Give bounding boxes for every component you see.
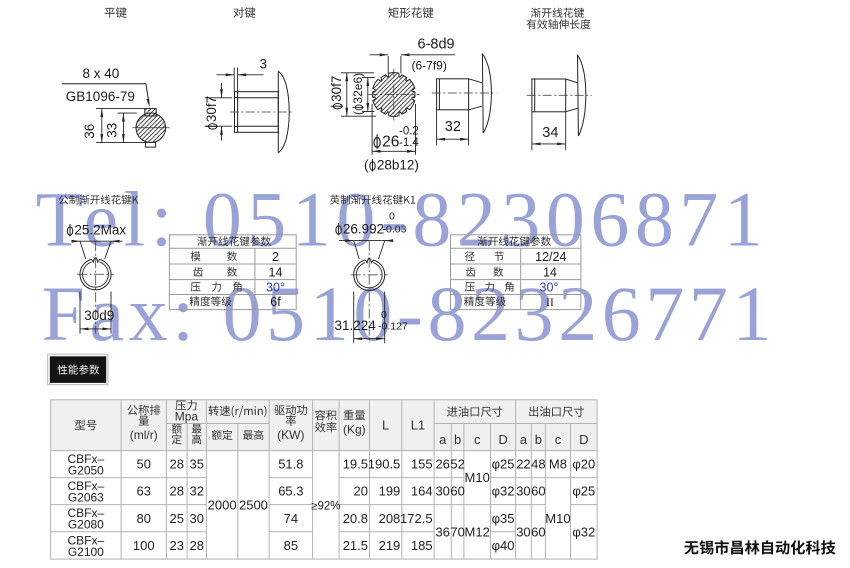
svg-text:φ25: φ25 (492, 457, 515, 472)
svg-text:35: 35 (190, 457, 204, 472)
svg-text:M10: M10 (545, 511, 570, 526)
svg-text:22: 22 (516, 457, 530, 472)
svg-text:G2050: G2050 (68, 464, 104, 478)
svg-text:31.224: 31.224 (335, 318, 377, 333)
svg-text:74: 74 (284, 511, 298, 526)
svg-text:51.8: 51.8 (278, 457, 303, 472)
svg-text:b: b (454, 432, 461, 447)
svg-text:25.2Max: 25.2Max (74, 223, 126, 238)
svg-text:-1.4: -1.4 (399, 137, 419, 149)
svg-text:164: 164 (411, 484, 433, 499)
svg-text:48: 48 (531, 457, 545, 472)
svg-text:3: 3 (260, 57, 268, 72)
svg-text:33: 33 (104, 123, 119, 138)
svg-text:Fax: 0510-82326771: Fax: 0510-82326771 (42, 270, 772, 357)
svg-text:-0.03: -0.03 (383, 224, 407, 236)
svg-text:GB1096-79: GB1096-79 (66, 89, 135, 104)
svg-text:60: 60 (531, 484, 545, 499)
svg-text:14: 14 (269, 265, 283, 279)
svg-text:20.8: 20.8 (343, 511, 368, 526)
svg-text:50: 50 (137, 457, 151, 472)
svg-text:155: 155 (411, 457, 433, 472)
svg-text:φ20: φ20 (572, 457, 595, 472)
svg-text:199: 199 (379, 484, 401, 499)
svg-text:G2063: G2063 (68, 491, 104, 505)
svg-text:D: D (498, 432, 507, 447)
svg-text:36: 36 (435, 524, 449, 539)
svg-text:-0.2: -0.2 (399, 126, 419, 138)
svg-text:19.5: 19.5 (343, 457, 368, 472)
svg-text:≥92%: ≥92% (311, 500, 340, 512)
svg-text:8 x 40: 8 x 40 (83, 66, 120, 81)
svg-text:65.3: 65.3 (278, 484, 303, 499)
svg-text:L1: L1 (411, 418, 425, 433)
svg-text:20: 20 (354, 484, 368, 499)
svg-text:(6-7f9): (6-7f9) (412, 59, 447, 73)
svg-text:190.5: 190.5 (368, 457, 401, 472)
svg-text:208: 208 (379, 511, 401, 526)
svg-text:φ32: φ32 (572, 524, 595, 539)
svg-text:30f7: 30f7 (204, 96, 219, 122)
svg-text:Tel: 0510-82306871: Tel: 0510-82306871 (36, 176, 763, 263)
svg-text:26: 26 (435, 457, 449, 472)
svg-text:100: 100 (133, 538, 155, 553)
svg-text:6-8d9: 6-8d9 (418, 37, 455, 53)
svg-text:28: 28 (170, 457, 184, 472)
svg-text:21.5: 21.5 (343, 538, 368, 553)
svg-text:D: D (579, 432, 588, 447)
svg-text:b: b (535, 432, 542, 447)
svg-text:32: 32 (445, 119, 461, 135)
svg-text:30d9: 30d9 (84, 308, 114, 323)
svg-text:30: 30 (516, 484, 530, 499)
svg-text:2: 2 (272, 250, 279, 264)
svg-text:φ25: φ25 (572, 484, 595, 499)
svg-text:2500: 2500 (239, 497, 268, 512)
svg-text:28: 28 (190, 538, 204, 553)
svg-text:(Kg): (Kg) (343, 422, 366, 436)
svg-text:172.5: 172.5 (400, 511, 433, 526)
svg-text:28: 28 (170, 484, 184, 499)
svg-text:34: 34 (542, 125, 558, 141)
svg-text:26.992: 26.992 (343, 222, 384, 237)
svg-text:φ40: φ40 (492, 538, 515, 553)
svg-text:a: a (439, 432, 447, 447)
svg-text:L: L (382, 418, 389, 433)
svg-text:30: 30 (190, 511, 204, 526)
svg-text:32: 32 (190, 484, 204, 499)
svg-text:219: 219 (379, 538, 401, 553)
svg-text:52: 52 (450, 457, 464, 472)
svg-text:25: 25 (170, 511, 184, 526)
svg-text:60: 60 (531, 524, 545, 539)
svg-text:14: 14 (543, 265, 557, 279)
svg-text:M8: M8 (549, 457, 567, 472)
svg-text:185: 185 (411, 538, 433, 553)
svg-text:30f7: 30f7 (329, 76, 344, 102)
svg-text:63: 63 (137, 484, 151, 499)
svg-text:28b12): 28b12) (377, 158, 419, 173)
svg-text:0: 0 (389, 211, 395, 223)
svg-text:85: 85 (284, 538, 298, 553)
svg-text:Mpa: Mpa (175, 410, 199, 424)
svg-text:G2100: G2100 (68, 545, 104, 559)
svg-text:30: 30 (516, 524, 530, 539)
svg-text:c: c (474, 432, 481, 447)
svg-text:c: c (555, 432, 562, 447)
svg-text:2000: 2000 (208, 497, 237, 512)
svg-text:12/24: 12/24 (535, 250, 566, 264)
svg-text:(: ( (364, 158, 369, 173)
svg-text:80: 80 (137, 511, 151, 526)
svg-text:0: 0 (381, 309, 387, 321)
svg-text:G2080: G2080 (68, 518, 104, 532)
svg-text:30°: 30° (266, 280, 285, 294)
svg-text:φ32: φ32 (492, 484, 515, 499)
svg-text:M10: M10 (465, 470, 490, 485)
svg-text:(ml/r): (ml/r) (130, 428, 158, 442)
svg-text:30°: 30° (540, 280, 559, 294)
svg-text:23: 23 (170, 538, 184, 553)
svg-text:(KW): (KW) (277, 428, 304, 442)
svg-text:M12: M12 (465, 524, 490, 539)
svg-text:φ35: φ35 (492, 511, 515, 526)
svg-text:36: 36 (82, 124, 97, 139)
svg-text:a: a (520, 432, 528, 447)
svg-text:II: II (546, 297, 554, 309)
svg-text:-0.127: -0.127 (378, 321, 408, 333)
svg-text:70: 70 (450, 524, 464, 539)
svg-text:60: 60 (450, 484, 464, 499)
svg-text:6f: 6f (270, 295, 281, 309)
svg-text:26: 26 (382, 134, 399, 151)
svg-text:30: 30 (435, 484, 449, 499)
